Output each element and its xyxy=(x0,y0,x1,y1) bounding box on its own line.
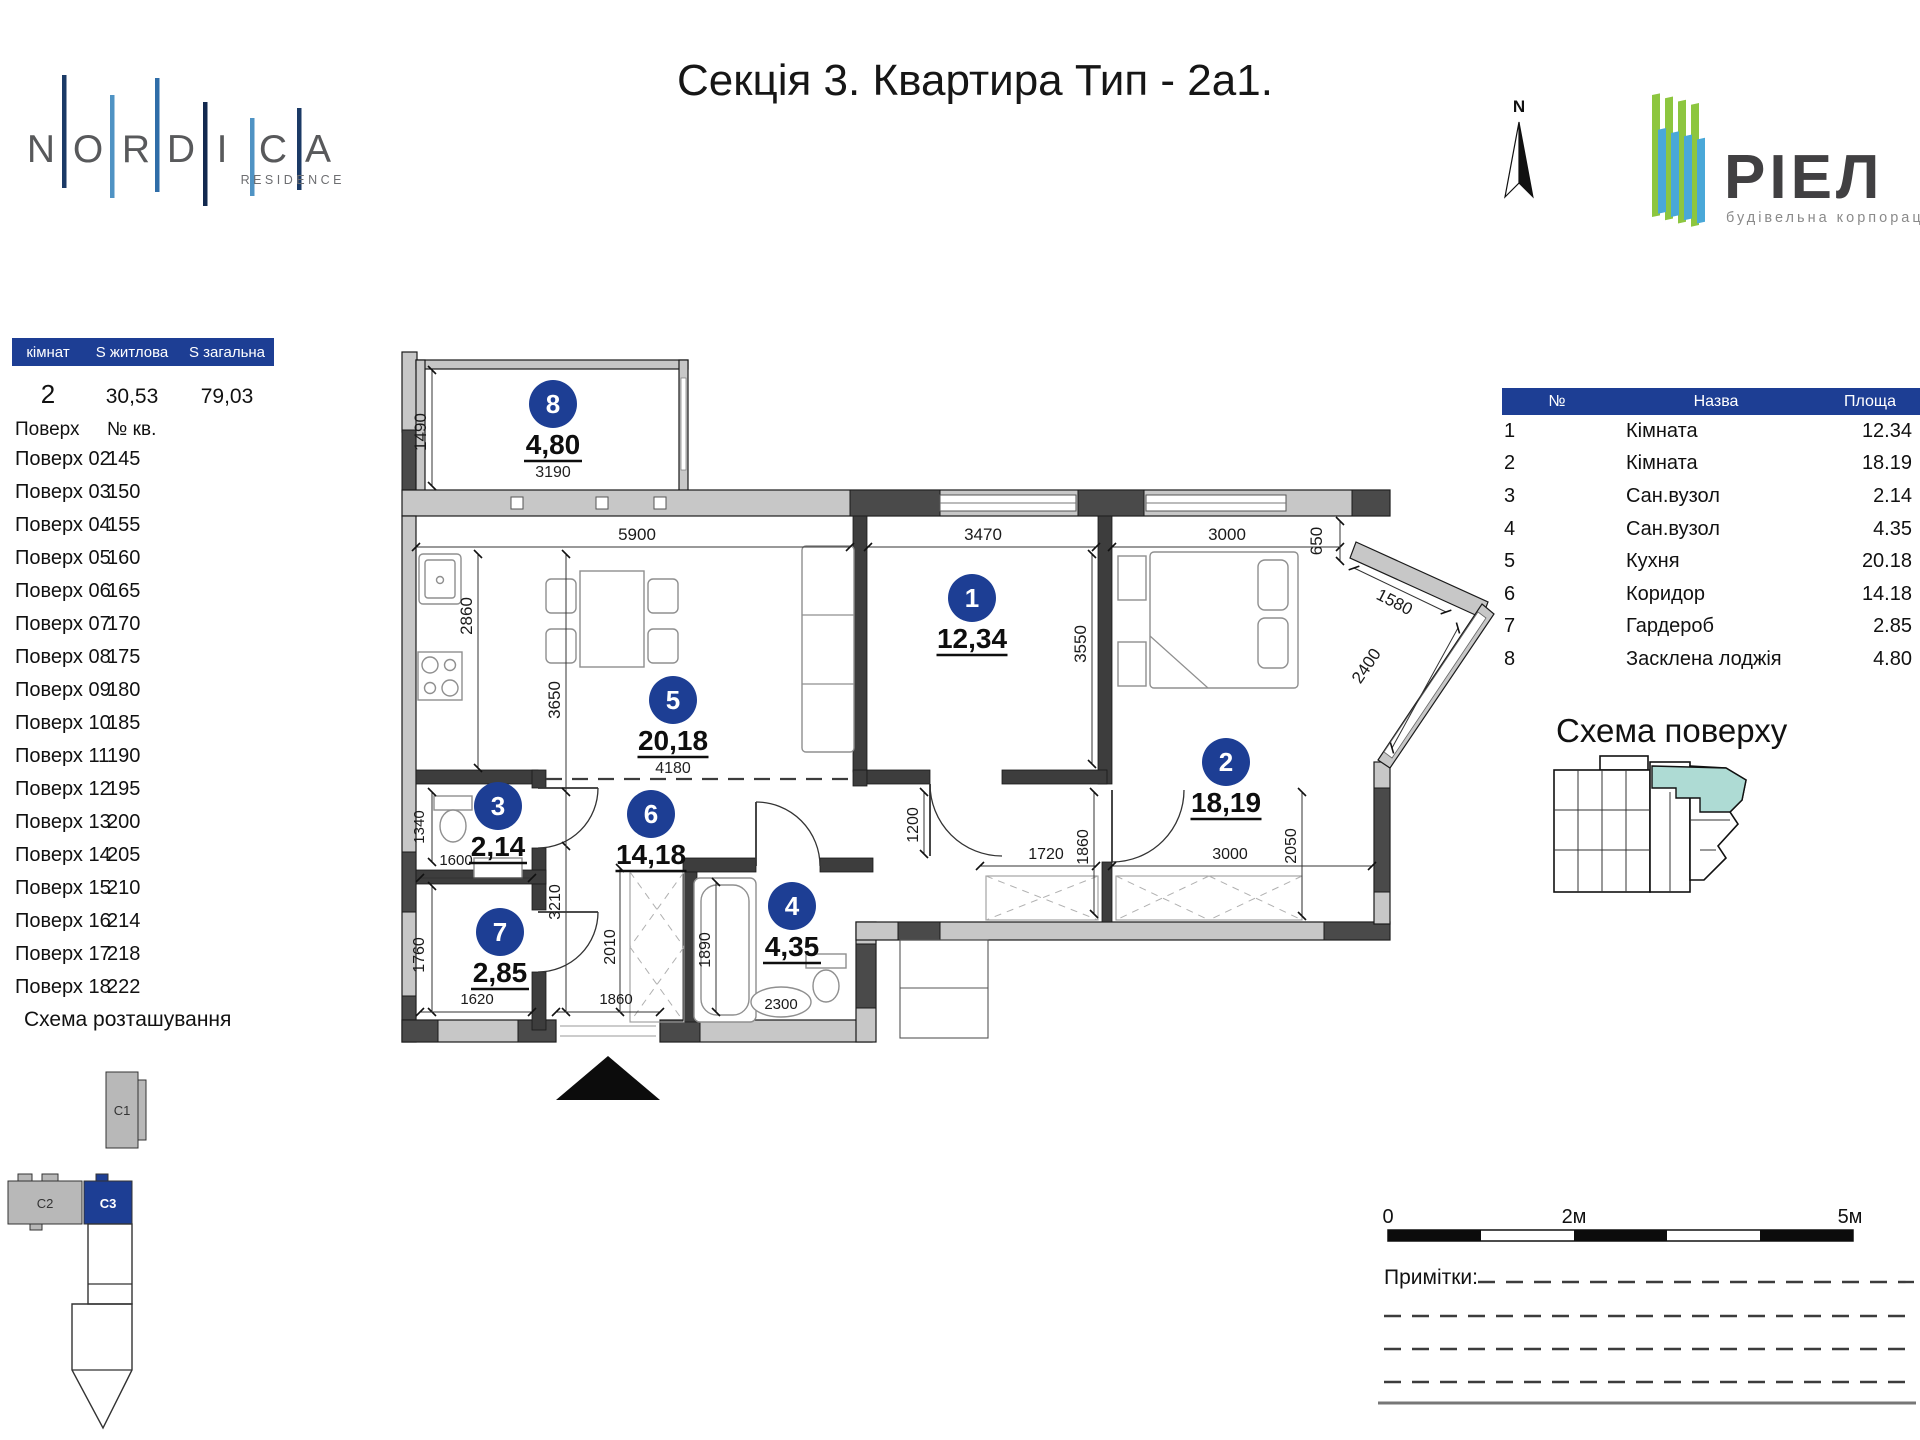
sink-drain xyxy=(437,577,444,584)
room-number: 5 xyxy=(666,685,680,715)
c2-notch xyxy=(18,1174,32,1181)
diag-wall-upper xyxy=(1350,542,1488,618)
c3-notch xyxy=(96,1174,108,1181)
logo-bar xyxy=(203,102,208,206)
riel-name: РІЕЛ xyxy=(1724,143,1883,212)
dim-room2_2050: 2050 xyxy=(1283,828,1300,864)
entrance-arrow xyxy=(556,1056,660,1100)
dim-corr_2010: 2010 xyxy=(602,929,619,965)
br-dark2 xyxy=(1324,922,1390,940)
logo-letter: O xyxy=(73,128,103,171)
wall-wc3-top xyxy=(416,770,538,784)
door-arc-ward xyxy=(538,912,598,972)
scale-2m: 2м xyxy=(1562,1206,1587,1228)
scale-5m: 5м xyxy=(1838,1206,1863,1228)
door-arc-wc3 xyxy=(538,788,598,848)
dim-top_kitchen: 5900 xyxy=(618,525,656,544)
room-badge-8: 84,803190 xyxy=(524,380,582,481)
dim-ward_1620: 1620 xyxy=(460,991,493,1008)
location-scheme: C1 C2 C3 xyxy=(8,1072,146,1428)
chair xyxy=(546,629,576,663)
toilet-wc3 xyxy=(440,810,466,842)
mini-floor-scheme xyxy=(1554,756,1746,892)
logo-bar xyxy=(155,78,160,192)
dim-top_room2: 3000 xyxy=(1208,525,1246,544)
toilet-wc4 xyxy=(813,970,839,1002)
right-wall-dark xyxy=(1374,788,1390,892)
wardrobe-corridor xyxy=(630,872,684,1022)
logo-bar xyxy=(110,95,115,198)
dim-diag_1580: 1580 xyxy=(1373,585,1415,619)
dim-lodge_h: 1490 xyxy=(411,413,430,451)
section-c1-step xyxy=(138,1080,146,1140)
scale-seg5 xyxy=(1760,1230,1853,1241)
logo-letter: I xyxy=(217,128,228,171)
wardrobe-x xyxy=(630,872,684,1022)
wardrobe-room2b xyxy=(1116,876,1302,920)
chair xyxy=(648,579,678,613)
diag-window xyxy=(1384,612,1486,758)
room-badge-6: 614,18 xyxy=(616,790,687,871)
c2-notch xyxy=(30,1224,42,1230)
burner xyxy=(445,660,456,671)
riel-bars xyxy=(1652,84,1705,235)
toilet-tank xyxy=(434,796,472,810)
room-number: 6 xyxy=(644,799,658,829)
wall-wc3-right-a xyxy=(532,770,546,788)
scale-seg3 xyxy=(1574,1230,1667,1241)
dining-table xyxy=(580,571,644,667)
step-wall-dark xyxy=(856,944,876,1008)
nightstand xyxy=(1118,642,1146,686)
room-number: 8 xyxy=(546,389,560,419)
building-outline-upper xyxy=(88,1224,132,1304)
dim-hall_1200: 1200 xyxy=(905,807,922,843)
room-badge-2: 218,19 xyxy=(1191,738,1262,819)
top-wall-dark1 xyxy=(850,490,940,516)
dim-closet_1720: 1720 xyxy=(1028,846,1064,863)
north-label: N xyxy=(1513,97,1525,116)
wall-wc4-top-a xyxy=(683,858,756,872)
logo-subtitle: RESIDENCE xyxy=(241,173,345,187)
section-c2-label: C2 xyxy=(37,1196,54,1211)
logo-letter: C xyxy=(259,128,287,171)
c2-notch xyxy=(42,1174,58,1181)
mini-protrusion xyxy=(1600,756,1648,770)
north-arrow: N xyxy=(1505,97,1533,197)
dim-top_room1: 3470 xyxy=(964,525,1002,544)
wall-closet xyxy=(1102,862,1112,922)
wall-joint xyxy=(853,770,867,786)
burner xyxy=(422,657,438,673)
window-post xyxy=(654,497,666,509)
wall-wc4-top-b xyxy=(820,858,873,872)
logo-letter: D xyxy=(167,128,195,171)
pillow xyxy=(1258,560,1288,610)
room-badge-1: 112,34 xyxy=(937,574,1008,655)
pillow xyxy=(1258,618,1288,668)
dim-wc4_1890: 1890 xyxy=(697,932,714,968)
room-area: 12,34 xyxy=(937,623,1007,654)
notes-lines xyxy=(1378,1282,1916,1403)
neighbor-outline xyxy=(900,940,988,1038)
scale-0: 0 xyxy=(1382,1206,1393,1228)
room-badge-3: 32,14 xyxy=(469,782,527,863)
room-area: 4,80 xyxy=(526,429,581,460)
logo-letter: R xyxy=(122,128,150,171)
wall-ward-right-a xyxy=(532,884,546,910)
chair xyxy=(648,629,678,663)
bottom-dark3 xyxy=(660,1020,700,1042)
window-post xyxy=(596,497,608,509)
wardrobe-x xyxy=(986,876,1098,920)
br-dark1 xyxy=(898,922,940,940)
needle-black-half xyxy=(1519,122,1533,197)
dim-kitchen_3650: 3650 xyxy=(545,681,564,719)
dimension-lines xyxy=(416,370,1458,1012)
dim-corner_650: 650 xyxy=(1307,527,1326,555)
dim-room2_3000: 3000 xyxy=(1212,846,1248,863)
room-number: 2 xyxy=(1219,747,1233,777)
sofa xyxy=(802,546,854,752)
left-wall-dark1 xyxy=(402,852,416,912)
room-badge-7: 72,85 xyxy=(471,908,529,989)
dim-kitchen_2860: 2860 xyxy=(457,597,476,635)
section-c3-label: C3 xyxy=(100,1196,117,1211)
room-area: 2,85 xyxy=(473,957,528,988)
dim-room1_3550: 3550 xyxy=(1071,625,1090,663)
room-area: 4,35 xyxy=(765,931,820,962)
room-area: 14,18 xyxy=(616,839,686,870)
nightstand xyxy=(1118,556,1146,600)
bottom-dark1 xyxy=(402,1020,438,1042)
wall-ward-right-b xyxy=(532,972,546,1030)
logo-letter: A xyxy=(305,128,331,171)
wall-hall-a xyxy=(867,770,930,784)
room-area: 20,18 xyxy=(638,725,708,756)
wall-hall-b xyxy=(1002,770,1107,784)
scale-seg1 xyxy=(1388,1230,1481,1241)
wall-room1-room2 xyxy=(1098,516,1112,784)
dim-diag_2400: 2400 xyxy=(1348,645,1385,687)
top-wall-dark2 xyxy=(1078,490,1144,516)
dim-wc4_2300: 2300 xyxy=(764,996,797,1013)
riel-subtitle: будівельна корпорація xyxy=(1726,210,1920,226)
room-sub-dim: 4180 xyxy=(655,760,691,777)
room-area: 2,14 xyxy=(471,831,526,862)
dim-closet_1860: 1860 xyxy=(1075,829,1092,865)
room-badge-5: 520,184180 xyxy=(638,676,709,777)
logo-bar xyxy=(62,75,67,188)
room-badge-4: 44,35 xyxy=(763,882,821,963)
dim-entry_1860: 1860 xyxy=(599,991,632,1008)
room-number: 1 xyxy=(965,583,979,613)
needle-white-half xyxy=(1505,122,1519,197)
riel-logo: РІЕЛ будівельна корпорація xyxy=(1652,84,1920,235)
room-area: 18,19 xyxy=(1191,787,1261,818)
room-number: 7 xyxy=(493,917,507,947)
building-outline-lower xyxy=(72,1304,132,1428)
wall-kitchen-room1 xyxy=(853,516,867,772)
lodge-window xyxy=(681,378,686,470)
burner xyxy=(442,680,458,696)
room-number: 4 xyxy=(785,891,800,921)
dim-line xyxy=(1392,628,1458,748)
burner xyxy=(425,683,436,694)
section-c1-label: C1 xyxy=(114,1103,131,1118)
logo-letter: N xyxy=(27,128,55,171)
dim-wc3_1340: 1340 xyxy=(411,810,428,843)
dim-wc3_1600: 1600 xyxy=(439,852,472,869)
chair xyxy=(546,579,576,613)
dim-corr_3210: 3210 xyxy=(547,884,564,920)
door-arc-room1 xyxy=(930,784,1002,856)
door-arc-wc4 xyxy=(756,802,820,866)
room-sub-dim: 3190 xyxy=(535,464,571,481)
drawing-layer: NORDICARESIDENCE N РІЕЛ будівельна корпо… xyxy=(0,0,1920,1440)
wardrobe-x xyxy=(1116,876,1302,920)
floor-plan: 1490590034703000650158024002860365035501… xyxy=(402,352,1494,1100)
nordica-logo: NORDICARESIDENCE xyxy=(27,75,345,206)
room-number: 3 xyxy=(491,791,505,821)
top-wall-dark3 xyxy=(1352,490,1390,516)
door-arc-room2 xyxy=(1112,790,1184,862)
dim-ward_1760: 1760 xyxy=(411,937,428,973)
scale-bar: 0 2м 5м xyxy=(1382,1206,1862,1241)
lodge-top-wall xyxy=(416,360,688,369)
window-post xyxy=(511,497,523,509)
